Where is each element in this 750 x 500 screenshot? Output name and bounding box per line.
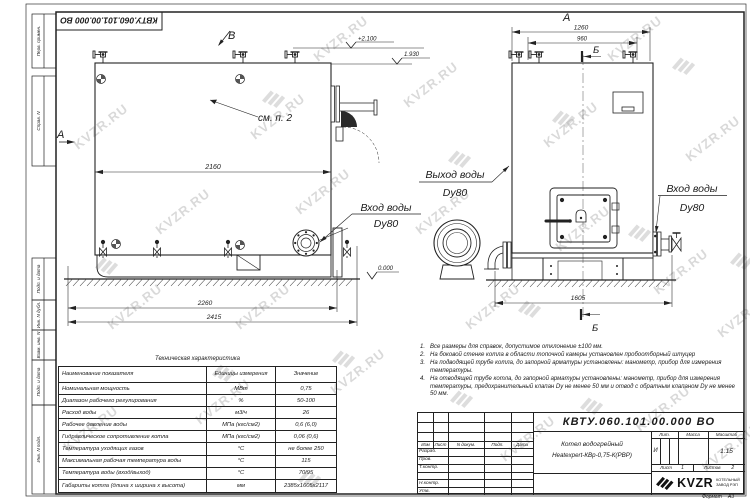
watermark-text: KVZR.RU: [153, 186, 213, 238]
table-cell-value: 2385х1605х2117: [276, 480, 336, 492]
note-text: На отводящей трубе котла, до запорной ар…: [430, 376, 742, 400]
margin-label: Перв. примен.: [36, 26, 41, 57]
note-number: 4.: [420, 376, 430, 400]
view-marker-a-side: А: [56, 129, 64, 141]
table-cell-value: 26: [276, 407, 336, 419]
label-inlet2-water: Вход воды: [667, 183, 718, 195]
table-cell-name: Габариты котла (длина х ширина х высота): [59, 480, 207, 492]
inlet-flange-front: [653, 232, 681, 256]
watermark-glyph: [448, 151, 471, 169]
table-cell-value: 0,06 (0,6): [276, 431, 336, 443]
stamp-header-sign: Подп.: [484, 441, 511, 448]
stamp-product-name-line2: Heatexpert-КВр-0,75-К(РВР): [533, 450, 651, 461]
stamp-header-date: Дата: [511, 441, 533, 448]
outlet-elbow-front: [484, 242, 511, 269]
table-cell-unit: °С: [207, 443, 276, 455]
table-cell-value: 115: [276, 456, 336, 468]
col-header-value: Значение: [276, 367, 336, 383]
kvzr-logo-glyph: [656, 475, 674, 491]
blower: [434, 220, 480, 279]
dim-1260: 1260: [574, 25, 589, 32]
table-cell-name: Номинальная мощность: [59, 383, 207, 395]
stamp-sheets-value: 2: [731, 465, 734, 471]
top-hatch-panel: [613, 92, 643, 113]
elevation-pipe: 1.930: [404, 52, 420, 58]
label-inlet-dy: Dy80: [374, 218, 399, 230]
watermark-text: KVZR.RU: [293, 166, 353, 218]
dim-2260: 2260: [197, 300, 213, 307]
elevation-marks: [346, 42, 430, 279]
table-cell-value: 0,75: [276, 383, 336, 395]
table-cell-unit: МПа (кгс/см2): [207, 431, 276, 443]
table-cell-name: Диапазон рабочего регулирования: [59, 395, 207, 407]
note-item: 2. На боковой стенке котла в области топ…: [420, 352, 742, 360]
table-cell-unit: %: [207, 395, 276, 407]
table-cell-unit: °С: [207, 468, 276, 480]
dim-2415: 2415: [206, 314, 222, 321]
watermark-text: KVZR.RU: [71, 101, 131, 153]
watermark-glyph: [672, 58, 695, 76]
margin-label: Подп. и дата: [36, 367, 41, 396]
doc-code-rotated: КВТУ.060.101.00.000 ВО: [60, 16, 158, 26]
stamp-sheet-label: Лист: [660, 465, 672, 470]
dim-2160: 2160: [204, 164, 221, 171]
watermark-text: KVZR.RU: [233, 281, 293, 333]
stamp-scale-header: Масштаб: [708, 431, 745, 438]
table-cell-name: Рабочее давление воды: [59, 419, 207, 431]
watermark-text: KVZR.RU: [105, 281, 165, 333]
notes-block: 1. Все размеры для справок, допустимое о…: [420, 344, 742, 399]
margin-labels: Перв. примен. Справ. N Подп. и дата Инв.…: [36, 26, 41, 463]
view-marker-v: В: [228, 30, 235, 42]
table-title: Техническая характеристика: [58, 356, 337, 366]
table-cell-unit: °С: [207, 456, 276, 468]
table-cell-name: Максимальная рабочая температура воды: [59, 456, 207, 468]
note-item: 4. На отводящей трубе котла, до запорной…: [420, 376, 742, 400]
table-cell-unit: МВт: [207, 383, 276, 395]
watermark-glyph: [628, 225, 651, 243]
margin-label: Инв. N подл.: [36, 436, 41, 463]
note-number: 1.: [420, 344, 430, 352]
logo-caption-line2: ЗАВОД РЭП: [716, 483, 738, 487]
margin-label: Справ. N: [36, 111, 41, 131]
stamp-row-label: Пров.: [419, 456, 447, 464]
logo-caption-line1: КОТЕЛЬНЫЙ: [716, 478, 740, 482]
watermark-text: KVZR.RU: [463, 281, 523, 333]
front-view: [434, 51, 681, 318]
stamp-product-name-line1: Котел водогрейный: [533, 439, 651, 450]
note-text: На подводящей трубе котла, до запорной а…: [430, 360, 742, 376]
side-view: [64, 51, 379, 279]
label-outlet-water: Выход воды: [425, 169, 484, 181]
stamp-header-list: Лист: [433, 441, 448, 448]
table-cell-unit: МПа (кгс/см2): [207, 419, 276, 431]
elevation-zero: 0.000: [378, 266, 394, 272]
format-word: Формат: [702, 494, 722, 500]
table-cell-name: Температура уходящих газов: [59, 443, 207, 455]
stamp-row-label: Разраб.: [419, 448, 447, 456]
section-marker-b-top: Б: [593, 45, 599, 56]
col-header-units: Единицы измерения: [207, 367, 276, 383]
designation-box-top: КВТУ.060.101.00.000 ВО: [56, 12, 162, 30]
table-cell-unit: м3/ч: [207, 407, 276, 419]
stamp-lit-header: Лит.: [651, 431, 678, 438]
watermark-text: KVZR.RU: [683, 113, 743, 165]
margin-column: [32, 14, 56, 494]
watermark-text: KVZR.RU: [541, 99, 601, 151]
table-cell-value: 70/95: [276, 468, 336, 480]
elevation-top: +2.100: [358, 37, 377, 43]
note-number: 3.: [420, 360, 430, 376]
drawing-sheet: KVZR.RUKVZR.RUKVZR.RUKVZR.RUKVZR.RUKVZR.…: [0, 0, 750, 500]
stamp-lit-value: И: [651, 438, 660, 464]
label-inlet2-dy: Dy80: [680, 202, 705, 214]
note-item: 3. На подводящей трубе котла, до запорно…: [420, 360, 742, 376]
dimension-lines: [68, 27, 672, 326]
stamp-header-izm: Изм: [418, 441, 433, 448]
kvzr-logo-text: KVZR: [677, 476, 713, 490]
stamp-row-label: Утв.: [419, 487, 447, 495]
margin-label: Инв. N дубл.: [36, 302, 41, 329]
section-marker-b-bottom: Б: [592, 323, 598, 334]
tech-characteristics-table: Техническая характеристика Наименование …: [58, 356, 337, 493]
stamp-scale-value: 1:15: [708, 438, 745, 464]
label-outlet-dy: Dy80: [443, 187, 468, 199]
table-cell-name: Гидравлическое сопротивление котла: [59, 431, 207, 443]
table-cell-value: 50-100: [276, 395, 336, 407]
format-label: Формат А3: [692, 494, 744, 500]
stamp-sheets-label: Листов: [704, 465, 721, 470]
dim-1605: 1605: [571, 295, 586, 302]
format-value: А3: [728, 494, 734, 500]
watermark-glyph: [730, 253, 750, 271]
stamp-row-label: [419, 472, 447, 480]
view-marker-a-top: А: [562, 12, 570, 24]
stamp-doc-code: КВТУ.060.101.00.000 ВО: [533, 413, 745, 431]
front-base: [512, 253, 653, 280]
table-cell-value: 0,6 (6,0): [276, 419, 336, 431]
note-text: Все размеры для справок, допустимое откл…: [430, 344, 742, 352]
note-number: 2.: [420, 352, 430, 360]
inlet-flange: [293, 230, 319, 256]
note-item: 1. Все размеры для справок, допустимое о…: [420, 344, 742, 352]
dim-960: 960: [577, 37, 588, 43]
stamp-mass-header: Масса: [678, 431, 708, 438]
stamp-header-doc: N докум.: [448, 441, 484, 448]
stamp-row-label: Т.контр.: [419, 464, 447, 472]
note-text: На боковой стенке котла в области топочн…: [430, 352, 742, 360]
col-header-name: Наименование показателя: [59, 367, 207, 383]
outlet-pipe-elbow: [331, 86, 379, 163]
table-cell-unit: мм: [207, 480, 276, 492]
margin-label: Взам. инв. N: [36, 331, 41, 358]
margin-label: Подп. и дата: [36, 264, 41, 293]
table-cell-name: Температура воды (вход/выход): [59, 468, 207, 480]
stamp-sheet-value: 1: [681, 465, 684, 471]
table-cell-name: Расход воды: [59, 407, 207, 419]
watermark-text: KVZR.RU: [401, 59, 461, 111]
stamp-row-label: Н.контр.: [419, 479, 447, 487]
label-inlet-water: Вход воды: [361, 202, 412, 214]
table-cell-value: не более 250: [276, 443, 336, 455]
see-note-callout: см. п. 2: [258, 113, 292, 124]
title-block: КВТУ.060.101.00.000 ВО Изм Лист N докум.…: [417, 412, 744, 494]
